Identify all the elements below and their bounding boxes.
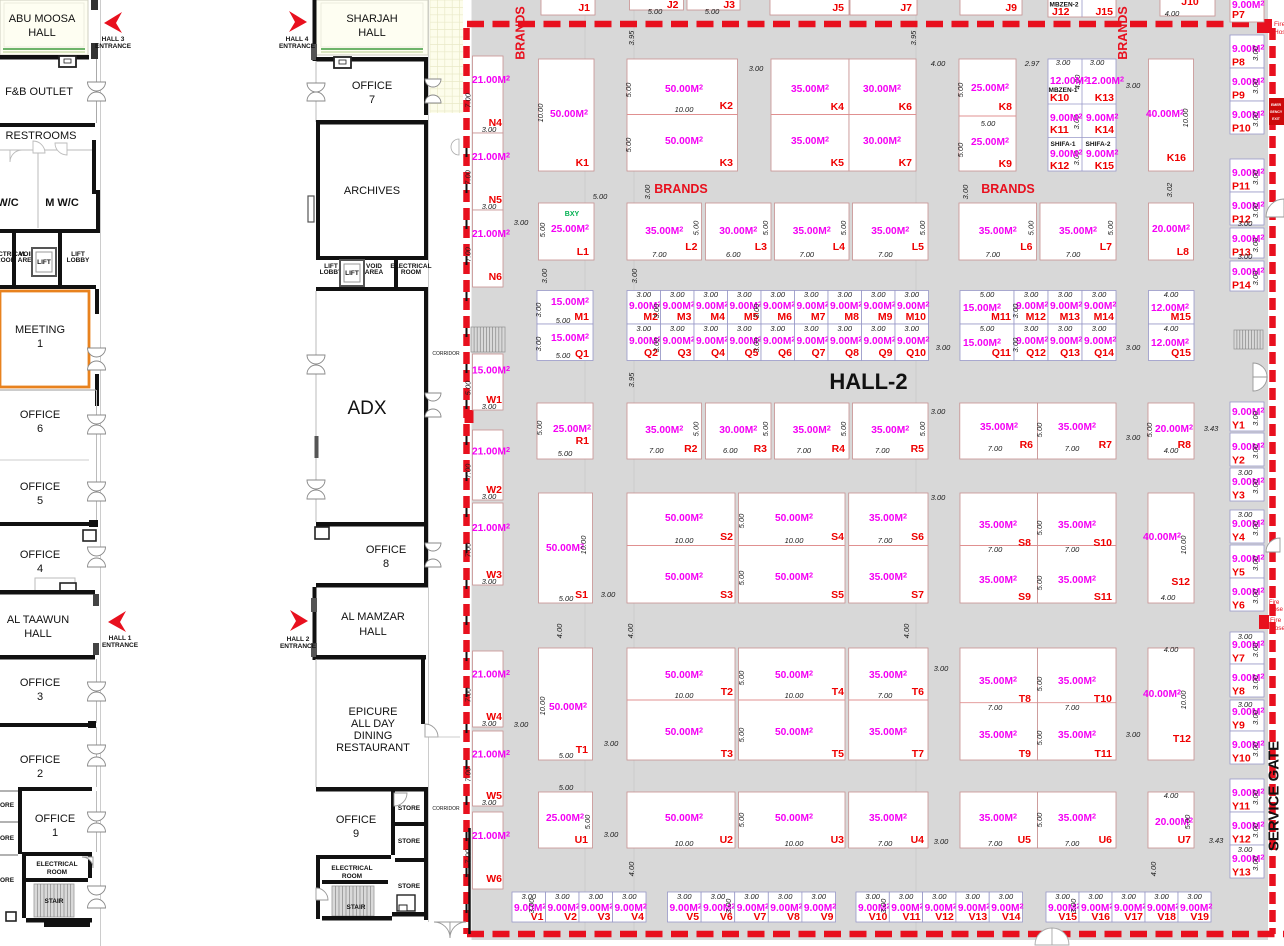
svg-text:V11: V11 <box>902 911 920 923</box>
svg-text:T10: T10 <box>1094 693 1112 705</box>
svg-text:Q10: Q10 <box>906 347 926 359</box>
svg-text:50.00M2: 50.00M2 <box>775 571 813 584</box>
svg-text:Q1: Q1 <box>575 348 589 360</box>
svg-text:ORE: ORE <box>0 877 15 884</box>
svg-text:3.00: 3.00 <box>936 343 951 352</box>
svg-text:35.00M2: 35.00M2 <box>869 669 907 682</box>
svg-text:J1: J1 <box>578 2 590 14</box>
svg-text:4.00: 4.00 <box>1161 593 1176 602</box>
svg-text:EPICURE: EPICURE <box>349 706 398 718</box>
svg-text:K4: K4 <box>831 101 845 113</box>
svg-text:35.00M2: 35.00M2 <box>1058 675 1096 688</box>
svg-text:3.00: 3.00 <box>1251 588 1260 603</box>
svg-text:V7: V7 <box>753 911 766 923</box>
svg-text:M6: M6 <box>777 311 792 323</box>
svg-text:3.00: 3.00 <box>1121 892 1136 901</box>
svg-text:3.00: 3.00 <box>752 303 761 318</box>
svg-text:30.00M2: 30.00M2 <box>863 83 901 96</box>
svg-text:CORRIDOR: CORRIDOR <box>432 351 460 357</box>
svg-text:MEETING: MEETING <box>15 324 65 336</box>
svg-text:L3: L3 <box>755 241 767 253</box>
svg-text:R5: R5 <box>911 443 925 455</box>
svg-text:3.00: 3.00 <box>778 892 793 901</box>
svg-text:10.00: 10.00 <box>1181 108 1190 128</box>
svg-text:6: 6 <box>37 423 43 435</box>
svg-text:50.00M2: 50.00M2 <box>665 669 703 682</box>
svg-text:9.00M2: 9.00M2 <box>763 335 795 348</box>
svg-text:3.00: 3.00 <box>1251 674 1260 689</box>
svg-text:3.00: 3.00 <box>1092 290 1107 299</box>
svg-text:30.00M2: 30.00M2 <box>863 135 901 148</box>
svg-text:21.00M2: 21.00M2 <box>472 668 510 681</box>
svg-text:W/C: W/C <box>0 197 19 209</box>
svg-text:3.00: 3.00 <box>703 324 718 333</box>
svg-text:3.00: 3.00 <box>811 892 826 901</box>
svg-text:3: 3 <box>37 691 43 703</box>
svg-text:7.00: 7.00 <box>649 446 664 455</box>
svg-text:10.00: 10.00 <box>675 839 695 848</box>
svg-text:3.00: 3.00 <box>1251 237 1260 252</box>
svg-text:Fire: Fire <box>1274 21 1284 28</box>
svg-text:M7: M7 <box>811 311 826 323</box>
svg-text:BRANDS: BRANDS <box>514 6 528 59</box>
svg-text:Y12: Y12 <box>1232 834 1251 846</box>
svg-text:K11: K11 <box>1050 124 1069 136</box>
svg-text:3.00: 3.00 <box>601 590 616 599</box>
svg-text:35.00M2: 35.00M2 <box>645 225 683 238</box>
svg-text:3.00: 3.00 <box>904 290 919 299</box>
svg-text:K6: K6 <box>899 101 913 113</box>
svg-text:V19: V19 <box>1190 911 1209 923</box>
svg-text:7.00: 7.00 <box>464 246 473 261</box>
svg-text:Y13: Y13 <box>1232 867 1251 879</box>
svg-text:T5: T5 <box>832 748 844 760</box>
svg-text:3.00: 3.00 <box>1251 478 1260 493</box>
svg-text:5.00: 5.00 <box>559 751 574 760</box>
svg-text:10.00: 10.00 <box>785 536 805 545</box>
svg-text:L1: L1 <box>577 246 589 258</box>
svg-text:SHIFA-1: SHIFA-1 <box>1051 141 1076 148</box>
svg-text:ABU MOOSA: ABU MOOSA <box>9 13 76 25</box>
svg-text:P8: P8 <box>1232 57 1245 69</box>
svg-text:V5: V5 <box>686 911 699 923</box>
svg-text:4.00: 4.00 <box>555 623 564 638</box>
svg-text:DINING: DINING <box>354 730 393 742</box>
svg-text:EMER: EMER <box>1271 103 1282 107</box>
svg-text:3.00: 3.00 <box>555 892 570 901</box>
svg-text:GENCY: GENCY <box>1270 110 1283 114</box>
svg-text:3.00: 3.00 <box>931 493 946 502</box>
svg-text:25.00M2: 25.00M2 <box>553 423 591 436</box>
svg-text:7.00: 7.00 <box>1065 444 1080 453</box>
svg-text:3.00: 3.00 <box>1251 202 1260 217</box>
svg-text:3.00: 3.00 <box>636 324 651 333</box>
svg-text:25.00M2: 25.00M2 <box>546 812 584 825</box>
svg-text:3.00: 3.00 <box>534 302 543 317</box>
svg-text:3.00: 3.00 <box>703 290 718 299</box>
svg-text:3.00: 3.00 <box>1251 270 1260 285</box>
svg-text:3.00: 3.00 <box>1092 324 1107 333</box>
svg-text:9.00M2: 9.00M2 <box>1050 112 1082 125</box>
svg-text:3.00: 3.00 <box>604 830 619 839</box>
svg-text:3.00: 3.00 <box>752 337 761 352</box>
svg-text:Q9: Q9 <box>878 347 892 359</box>
svg-text:7.00: 7.00 <box>988 444 1003 453</box>
svg-text:3.00: 3.00 <box>1251 111 1260 126</box>
svg-text:3.00: 3.00 <box>1251 443 1260 458</box>
svg-text:5.00: 5.00 <box>464 380 473 395</box>
svg-text:7.00: 7.00 <box>796 446 811 455</box>
svg-text:4.00: 4.00 <box>931 59 946 68</box>
svg-text:4.00: 4.00 <box>1164 290 1179 299</box>
svg-text:3.00: 3.00 <box>534 336 543 351</box>
svg-text:35.00M2: 35.00M2 <box>869 571 907 584</box>
svg-text:7.00: 7.00 <box>988 839 1003 848</box>
svg-text:ROOM: ROOM <box>401 269 421 276</box>
svg-text:50.00M2: 50.00M2 <box>775 669 813 682</box>
svg-text:Q15: Q15 <box>1171 347 1191 359</box>
svg-text:Q6: Q6 <box>778 347 792 359</box>
svg-text:7.00: 7.00 <box>464 92 473 107</box>
svg-text:Fire: Fire <box>1270 617 1282 624</box>
svg-text:STAIR: STAIR <box>44 898 63 905</box>
svg-text:3.00: 3.00 <box>643 184 652 199</box>
svg-text:R3: R3 <box>754 443 768 455</box>
svg-text:5.00: 5.00 <box>559 594 574 603</box>
svg-text:K9: K9 <box>999 158 1013 170</box>
svg-text:ENTRANCE: ENTRANCE <box>279 43 316 50</box>
svg-text:7.00: 7.00 <box>464 766 473 781</box>
svg-text:9: 9 <box>353 828 359 840</box>
svg-text:5.00: 5.00 <box>1035 676 1044 691</box>
svg-text:T6: T6 <box>912 686 924 698</box>
svg-text:5.00: 5.00 <box>556 351 571 360</box>
svg-text:3.00: 3.00 <box>1088 892 1103 901</box>
svg-text:5.00: 5.00 <box>956 82 965 97</box>
svg-text:J5: J5 <box>832 2 844 14</box>
svg-text:5.00: 5.00 <box>1145 422 1154 437</box>
svg-text:30.00M2: 30.00M2 <box>719 225 757 238</box>
svg-text:7.00: 7.00 <box>988 545 1003 554</box>
svg-text:9.00M2: 9.00M2 <box>1086 112 1118 125</box>
svg-text:HALL: HALL <box>358 27 386 39</box>
svg-text:OFFICE: OFFICE <box>336 814 376 826</box>
svg-text:S12: S12 <box>1171 576 1190 588</box>
svg-text:P10: P10 <box>1232 123 1251 135</box>
svg-text:T1: T1 <box>576 744 588 756</box>
svg-text:9.00M2: 9.00M2 <box>797 335 829 348</box>
svg-text:3.00: 3.00 <box>677 892 692 901</box>
svg-text:S2: S2 <box>720 531 733 543</box>
svg-text:5.00: 5.00 <box>1106 220 1115 235</box>
svg-text:3.00: 3.00 <box>1251 855 1260 870</box>
svg-text:5.00: 5.00 <box>583 814 592 829</box>
svg-text:ORE: ORE <box>0 835 15 842</box>
svg-text:Y1: Y1 <box>1232 420 1245 432</box>
svg-text:SERVICE GATE: SERVICE GATE <box>1266 741 1283 851</box>
svg-text:ADX: ADX <box>347 398 386 419</box>
svg-text:V9: V9 <box>821 911 834 923</box>
svg-text:M W/C: M W/C <box>45 197 79 209</box>
svg-text:M12: M12 <box>1026 311 1047 323</box>
svg-text:7.00: 7.00 <box>652 250 667 259</box>
svg-text:10.00: 10.00 <box>579 535 588 555</box>
svg-text:50.00M2: 50.00M2 <box>775 512 813 525</box>
svg-text:V17: V17 <box>1124 911 1143 923</box>
svg-text:35.00M2: 35.00M2 <box>1058 519 1096 532</box>
svg-text:ROOM: ROOM <box>342 873 362 880</box>
svg-text:5.00: 5.00 <box>918 220 927 235</box>
svg-text:S6: S6 <box>911 531 924 543</box>
svg-text:5.00: 5.00 <box>737 727 746 742</box>
svg-text:BXY: BXY <box>565 211 580 218</box>
svg-text:Q11: Q11 <box>992 347 1011 359</box>
svg-text:5.00: 5.00 <box>981 119 996 128</box>
svg-text:ARCHIVES: ARCHIVES <box>344 185 400 197</box>
svg-text:10.00: 10.00 <box>536 103 545 123</box>
svg-text:R8: R8 <box>1178 439 1192 451</box>
svg-text:S5: S5 <box>831 589 844 601</box>
svg-text:V14: V14 <box>1002 911 1021 923</box>
svg-text:3.00: 3.00 <box>1251 520 1260 535</box>
svg-text:5: 5 <box>37 495 43 507</box>
svg-text:K12: K12 <box>1050 160 1069 172</box>
svg-text:J9: J9 <box>1005 2 1017 14</box>
svg-text:Y7: Y7 <box>1232 653 1245 665</box>
svg-text:Hose: Hose <box>1269 607 1284 613</box>
svg-text:Y11: Y11 <box>1232 801 1250 813</box>
svg-text:10.00: 10.00 <box>675 536 695 545</box>
svg-text:3.00: 3.00 <box>724 898 733 913</box>
svg-text:7.00: 7.00 <box>988 703 1003 712</box>
svg-text:3.00: 3.00 <box>514 218 529 227</box>
svg-text:10.00: 10.00 <box>1179 535 1188 555</box>
svg-text:V8: V8 <box>787 911 800 923</box>
svg-text:3.00: 3.00 <box>1251 822 1260 837</box>
svg-text:HALL 4: HALL 4 <box>286 36 309 43</box>
svg-text:3.00: 3.00 <box>1251 410 1260 425</box>
svg-text:50.00M2: 50.00M2 <box>549 701 587 714</box>
svg-text:HALL-2: HALL-2 <box>829 369 907 394</box>
svg-text:T2: T2 <box>721 686 733 698</box>
svg-text:3.00: 3.00 <box>1126 81 1141 90</box>
svg-text:7.00: 7.00 <box>1065 703 1080 712</box>
svg-text:3.00: 3.00 <box>540 268 549 283</box>
svg-text:40.00M2: 40.00M2 <box>1143 688 1181 701</box>
svg-text:L2: L2 <box>685 241 697 253</box>
svg-text:J2: J2 <box>667 0 679 11</box>
svg-text:M14: M14 <box>1094 311 1115 323</box>
svg-text:J15: J15 <box>1095 6 1113 18</box>
svg-text:3.00: 3.00 <box>636 290 651 299</box>
svg-text:7.00: 7.00 <box>875 446 890 455</box>
svg-text:35.00M2: 35.00M2 <box>1058 421 1096 434</box>
svg-text:LIFT: LIFT <box>37 259 51 266</box>
svg-text:12.00M2: 12.00M2 <box>1086 75 1124 88</box>
svg-text:35.00M2: 35.00M2 <box>869 512 907 525</box>
svg-text:3.00: 3.00 <box>1251 642 1260 657</box>
svg-text:ENTRANCE: ENTRANCE <box>280 643 317 650</box>
svg-text:L8: L8 <box>1177 246 1189 258</box>
svg-text:OFFICE: OFFICE <box>20 549 60 561</box>
svg-text:5.00: 5.00 <box>624 137 633 152</box>
svg-text:5.00: 5.00 <box>737 670 746 685</box>
svg-text:3.00: 3.00 <box>1024 324 1039 333</box>
svg-text:S4: S4 <box>831 531 844 543</box>
svg-text:5.00: 5.00 <box>648 7 663 16</box>
svg-text:5.00: 5.00 <box>692 220 701 235</box>
svg-text:5.00: 5.00 <box>1183 814 1192 829</box>
svg-text:HALL 1: HALL 1 <box>109 635 132 642</box>
svg-text:5.00: 5.00 <box>839 421 848 436</box>
svg-text:ENTRANCE: ENTRANCE <box>95 43 132 50</box>
svg-text:7.00: 7.00 <box>464 687 473 702</box>
svg-text:3.00: 3.00 <box>482 719 497 728</box>
svg-text:Hose: Hose <box>1274 29 1284 36</box>
svg-text:Fire: Fire <box>1269 600 1280 606</box>
svg-text:U3: U3 <box>831 834 845 846</box>
svg-text:3.00: 3.00 <box>1238 468 1253 477</box>
svg-text:OFFICE: OFFICE <box>20 677 60 689</box>
svg-text:3.00: 3.00 <box>934 664 949 673</box>
svg-text:3.00: 3.00 <box>770 290 785 299</box>
svg-text:5.00: 5.00 <box>956 142 965 157</box>
svg-text:P11: P11 <box>1232 181 1250 193</box>
svg-text:4: 4 <box>37 563 43 575</box>
svg-text:35.00M2: 35.00M2 <box>871 424 909 437</box>
svg-text:Q7: Q7 <box>811 347 825 359</box>
svg-text:21.00M2: 21.00M2 <box>472 73 510 86</box>
svg-text:5.00: 5.00 <box>1035 422 1044 437</box>
svg-text:U1: U1 <box>575 834 589 846</box>
svg-text:EXIT: EXIT <box>1272 117 1281 121</box>
svg-text:ELECTRICAL: ELECTRICAL <box>331 865 372 872</box>
svg-text:T12: T12 <box>1173 733 1191 745</box>
svg-text:HALL: HALL <box>28 27 56 39</box>
svg-text:AREA: AREA <box>365 269 384 276</box>
svg-text:M4: M4 <box>710 311 725 323</box>
svg-text:HALL: HALL <box>24 628 52 640</box>
svg-text:HALL: HALL <box>359 626 387 638</box>
svg-text:N6: N6 <box>489 271 503 283</box>
svg-text:V13: V13 <box>969 911 988 923</box>
svg-text:3.00: 3.00 <box>527 898 536 913</box>
svg-text:T11: T11 <box>1094 748 1112 760</box>
svg-text:21.00M2: 21.00M2 <box>472 445 510 458</box>
svg-text:40.00M2: 40.00M2 <box>1146 108 1184 121</box>
svg-text:25.00M2: 25.00M2 <box>971 82 1009 95</box>
svg-text:4.00: 4.00 <box>902 623 911 638</box>
svg-text:9.00M2: 9.00M2 <box>1016 335 1048 348</box>
svg-text:4.00: 4.00 <box>1165 9 1180 18</box>
svg-text:35.00M2: 35.00M2 <box>791 83 829 96</box>
svg-text:3.00: 3.00 <box>744 892 759 901</box>
svg-text:Q3: Q3 <box>677 347 691 359</box>
svg-text:3.00: 3.00 <box>1126 343 1141 352</box>
svg-text:S3: S3 <box>720 589 733 601</box>
svg-text:OFFICE: OFFICE <box>352 80 392 92</box>
svg-text:10.00: 10.00 <box>1179 690 1188 710</box>
svg-text:35.00M2: 35.00M2 <box>1058 574 1096 587</box>
svg-text:Y5: Y5 <box>1232 567 1245 579</box>
svg-text:5.00: 5.00 <box>558 449 573 458</box>
svg-text:U2: U2 <box>720 834 734 846</box>
svg-text:3.00: 3.00 <box>1251 741 1260 756</box>
svg-text:3.00: 3.00 <box>1251 78 1260 93</box>
svg-text:5.00: 5.00 <box>593 192 608 201</box>
svg-text:Q14: Q14 <box>1094 347 1114 359</box>
svg-text:3.00: 3.00 <box>770 324 785 333</box>
svg-text:4.00: 4.00 <box>1149 861 1158 876</box>
svg-text:6.00: 6.00 <box>726 250 741 259</box>
svg-text:15.00M2: 15.00M2 <box>551 332 589 345</box>
svg-text:21.00M2: 21.00M2 <box>472 829 510 842</box>
svg-text:K8: K8 <box>999 101 1013 113</box>
svg-text:L7: L7 <box>1100 241 1112 253</box>
svg-text:5.00: 5.00 <box>1035 575 1044 590</box>
svg-text:V4: V4 <box>631 911 644 923</box>
svg-text:Y9: Y9 <box>1232 720 1245 732</box>
svg-text:20.00M2: 20.00M2 <box>1155 423 1193 436</box>
svg-text:S1: S1 <box>575 589 588 601</box>
svg-text:7.00: 7.00 <box>985 250 1000 259</box>
svg-text:50.00M2: 50.00M2 <box>665 83 703 96</box>
svg-text:15.00M2: 15.00M2 <box>472 364 510 377</box>
svg-text:BRANDS: BRANDS <box>981 182 1034 196</box>
svg-text:9.00M2: 9.00M2 <box>1086 148 1118 161</box>
svg-text:35.00M2: 35.00M2 <box>1058 729 1096 742</box>
svg-text:3.00: 3.00 <box>871 290 886 299</box>
svg-text:T4: T4 <box>832 686 844 698</box>
svg-text:3.00: 3.00 <box>1238 845 1253 854</box>
svg-text:3.00: 3.00 <box>999 892 1014 901</box>
svg-text:50.00M2: 50.00M2 <box>665 571 703 584</box>
svg-text:R2: R2 <box>684 443 698 455</box>
svg-text:5.00: 5.00 <box>839 220 848 235</box>
svg-text:3.00: 3.00 <box>931 407 946 416</box>
svg-text:3.02: 3.02 <box>1165 182 1174 197</box>
svg-text:S7: S7 <box>911 589 924 601</box>
svg-text:3.00: 3.00 <box>1251 45 1260 60</box>
svg-text:3.00: 3.00 <box>934 837 949 846</box>
svg-text:Q13: Q13 <box>1060 347 1080 359</box>
svg-text:25.00M2: 25.00M2 <box>971 136 1009 149</box>
svg-text:3.95: 3.95 <box>909 30 918 45</box>
svg-text:3.00: 3.00 <box>630 268 639 283</box>
svg-text:U7: U7 <box>1178 834 1192 846</box>
svg-text:K2: K2 <box>720 100 734 112</box>
svg-text:21.00M2: 21.00M2 <box>472 522 510 535</box>
svg-text:Q4: Q4 <box>711 347 725 359</box>
svg-text:21.00M2: 21.00M2 <box>472 748 510 761</box>
svg-text:6.00: 6.00 <box>723 446 738 455</box>
svg-text:5.00: 5.00 <box>761 421 770 436</box>
svg-text:STORE: STORE <box>398 838 421 845</box>
svg-text:OFFICE: OFFICE <box>35 813 75 825</box>
svg-text:3.00: 3.00 <box>932 892 947 901</box>
svg-text:K5: K5 <box>831 157 845 169</box>
svg-text:3.00: 3.00 <box>1069 898 1078 913</box>
svg-text:BRANDS: BRANDS <box>654 182 707 196</box>
svg-text:35.00M2: 35.00M2 <box>1059 225 1097 238</box>
svg-text:5.00: 5.00 <box>538 222 547 237</box>
svg-text:10.00: 10.00 <box>675 105 695 114</box>
svg-text:5.00: 5.00 <box>559 783 574 792</box>
svg-text:Y10: Y10 <box>1232 753 1251 765</box>
svg-text:4.00: 4.00 <box>1164 645 1179 654</box>
svg-text:4.00: 4.00 <box>627 861 636 876</box>
svg-text:3.00: 3.00 <box>1126 433 1141 442</box>
